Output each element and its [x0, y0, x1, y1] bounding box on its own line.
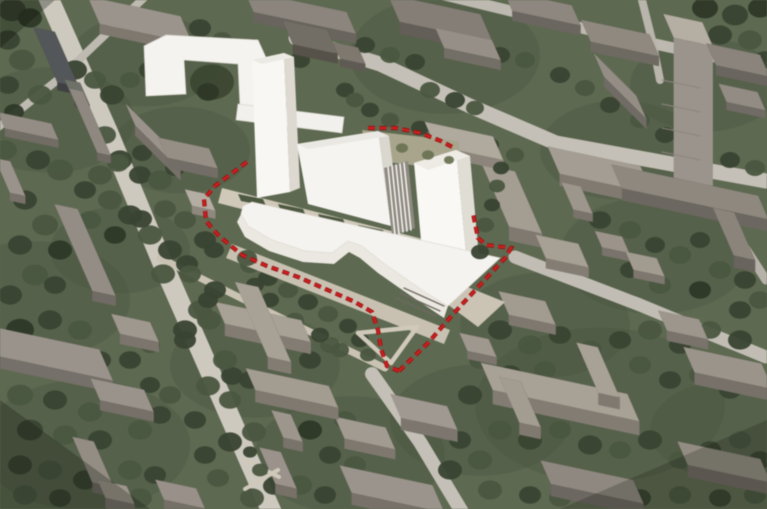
aerial-render — [0, 0, 767, 509]
masterplan-aerial-view — [0, 0, 767, 509]
